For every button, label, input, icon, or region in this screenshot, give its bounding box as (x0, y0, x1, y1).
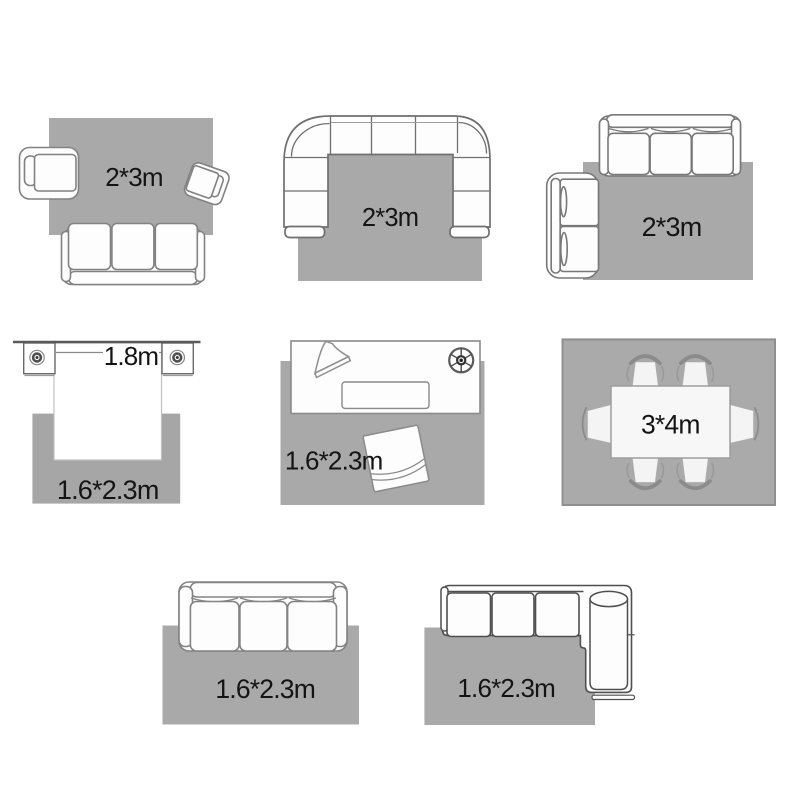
svg-text:1.8m: 1.8m (104, 341, 159, 371)
svg-text:1.6*2.3m: 1.6*2.3m (57, 475, 159, 505)
svg-text:1.6*2.3m: 1.6*2.3m (457, 673, 555, 703)
svg-text:3*4m: 3*4m (641, 410, 700, 440)
svg-text:1.6*2.3m: 1.6*2.3m (215, 674, 315, 704)
svg-text:2*3m: 2*3m (362, 204, 418, 232)
svg-text:2*3m: 2*3m (105, 162, 163, 192)
svg-text:1.6*2.3m: 1.6*2.3m (285, 446, 383, 476)
svg-text:2*3m: 2*3m (642, 212, 702, 242)
